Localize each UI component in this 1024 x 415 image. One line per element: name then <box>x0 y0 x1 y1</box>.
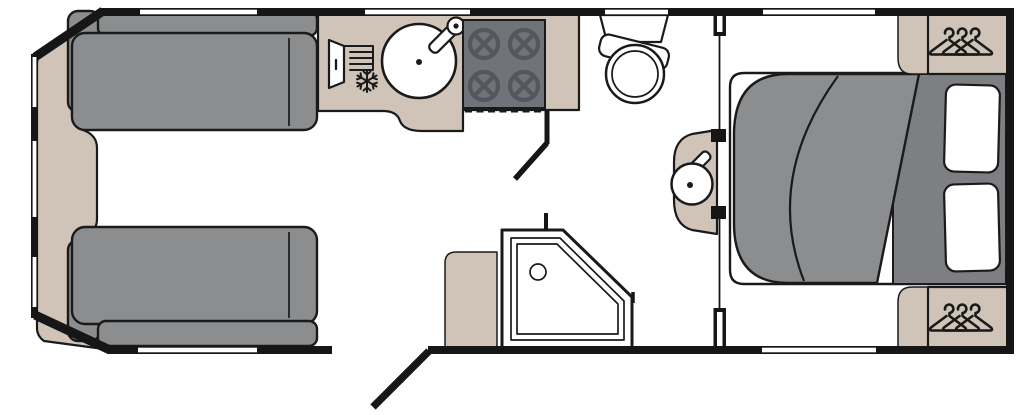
floorplan-svg <box>0 0 1024 415</box>
bedside-unit-bottom <box>898 287 928 349</box>
sofa-top <box>68 11 317 130</box>
wardrobe-top <box>928 12 1008 74</box>
partition-kitchen-washroom <box>545 111 550 144</box>
pillow <box>944 84 1000 172</box>
window <box>33 141 37 217</box>
window <box>33 257 37 307</box>
sink-tap-dot <box>453 23 458 28</box>
window <box>762 348 876 353</box>
sink-drain <box>416 59 422 65</box>
wall-bottom-right <box>428 346 1014 354</box>
window <box>605 10 668 15</box>
washbasin-unit <box>672 130 718 234</box>
entrance-door-leaf <box>373 351 429 407</box>
washbasin-drain <box>687 182 693 188</box>
sofa-bottom <box>68 227 317 346</box>
shower-cabinet <box>445 252 497 348</box>
pillow <box>944 183 1000 271</box>
floorplan-canvas <box>0 0 1024 415</box>
bedside-unit-top <box>898 12 928 74</box>
toilet-bowl <box>606 45 664 103</box>
sofa-seat-cushion <box>72 33 317 130</box>
sofa-seat-cushion <box>72 227 317 324</box>
wardrobe-bottom <box>928 287 1008 349</box>
window <box>763 10 875 15</box>
window <box>140 10 257 15</box>
wall-right <box>1006 8 1014 354</box>
hob <box>463 20 545 108</box>
window <box>365 10 470 15</box>
window <box>33 57 37 107</box>
window <box>138 348 257 353</box>
island-bed <box>730 73 1006 284</box>
sofa-back-cushion <box>98 321 317 346</box>
